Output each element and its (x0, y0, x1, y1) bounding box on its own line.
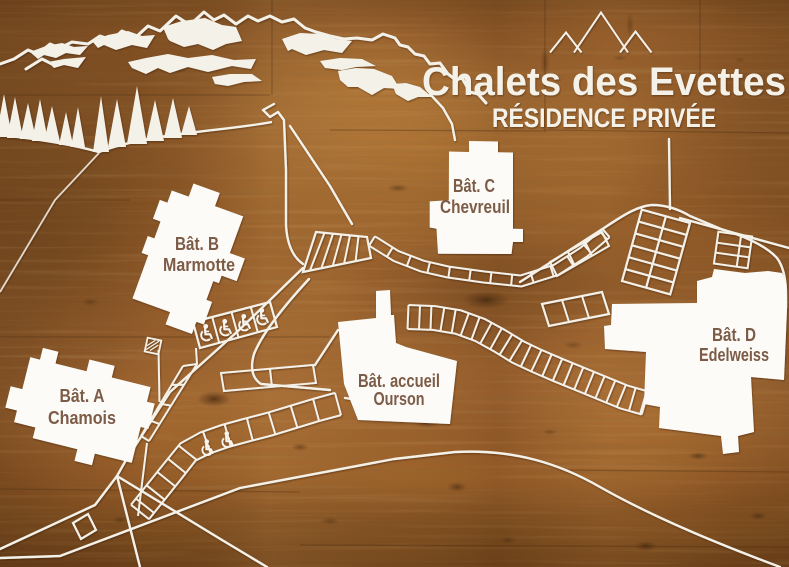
svg-text:Edelweiss: Edelweiss (699, 345, 769, 365)
svg-text:Ourson: Ourson (374, 389, 425, 409)
svg-text:Chamois: Chamois (48, 408, 116, 428)
svg-text:Bât. A: Bât. A (60, 386, 105, 406)
svg-text:Chalets des Evettes: Chalets des Evettes (422, 60, 786, 104)
svg-text:RÉSIDENCE PRIVÉE: RÉSIDENCE PRIVÉE (492, 102, 716, 133)
svg-text:Chevreuil: Chevreuil (440, 197, 510, 217)
svg-text:Bât. C: Bât. C (453, 176, 495, 196)
svg-text:Bât. B: Bât. B (175, 234, 219, 254)
svg-text:Marmotte: Marmotte (163, 255, 235, 275)
svg-text:Bât. accueil: Bât. accueil (358, 371, 440, 391)
svg-text:Bât. D: Bât. D (712, 325, 756, 345)
